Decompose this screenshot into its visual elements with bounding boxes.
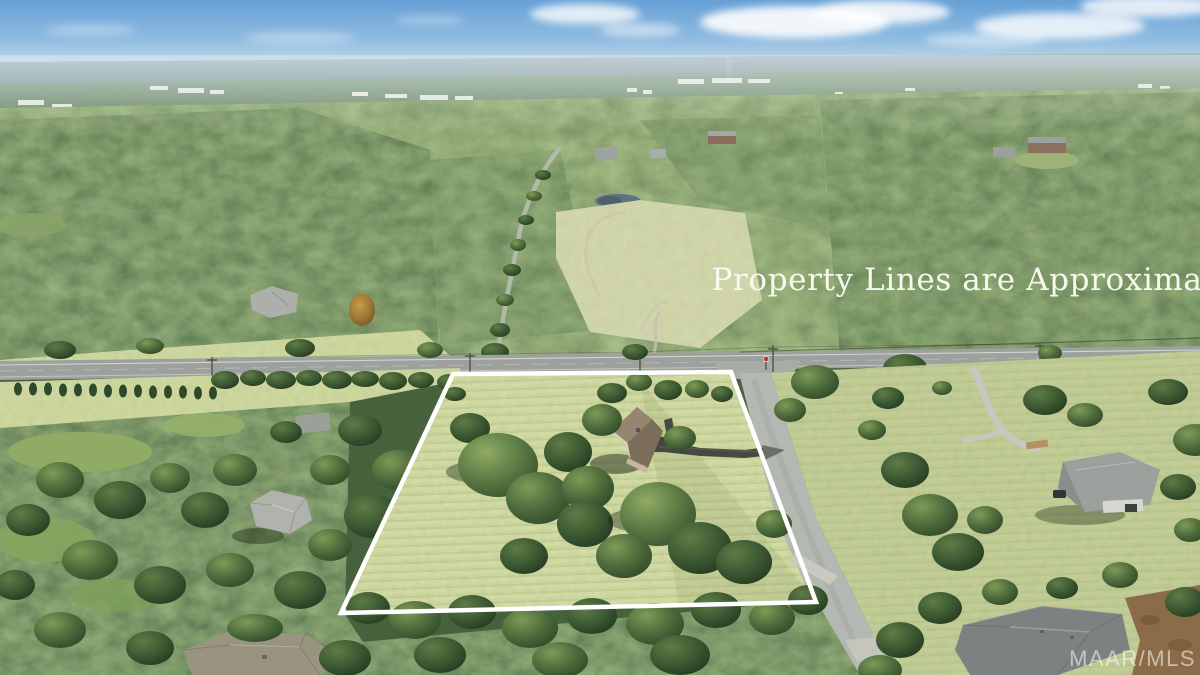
mls-watermark: MAAR/MLS	[1069, 646, 1196, 671]
photo-grain	[0, 0, 1200, 675]
disclaimer-text: Property Lines are Approximate	[712, 262, 1200, 298]
aerial-photo-canvas: Property Lines are Approximate MAAR/MLS	[0, 0, 1200, 675]
aerial-photo: Property Lines are Approximate MAAR/MLS	[0, 0, 1200, 675]
